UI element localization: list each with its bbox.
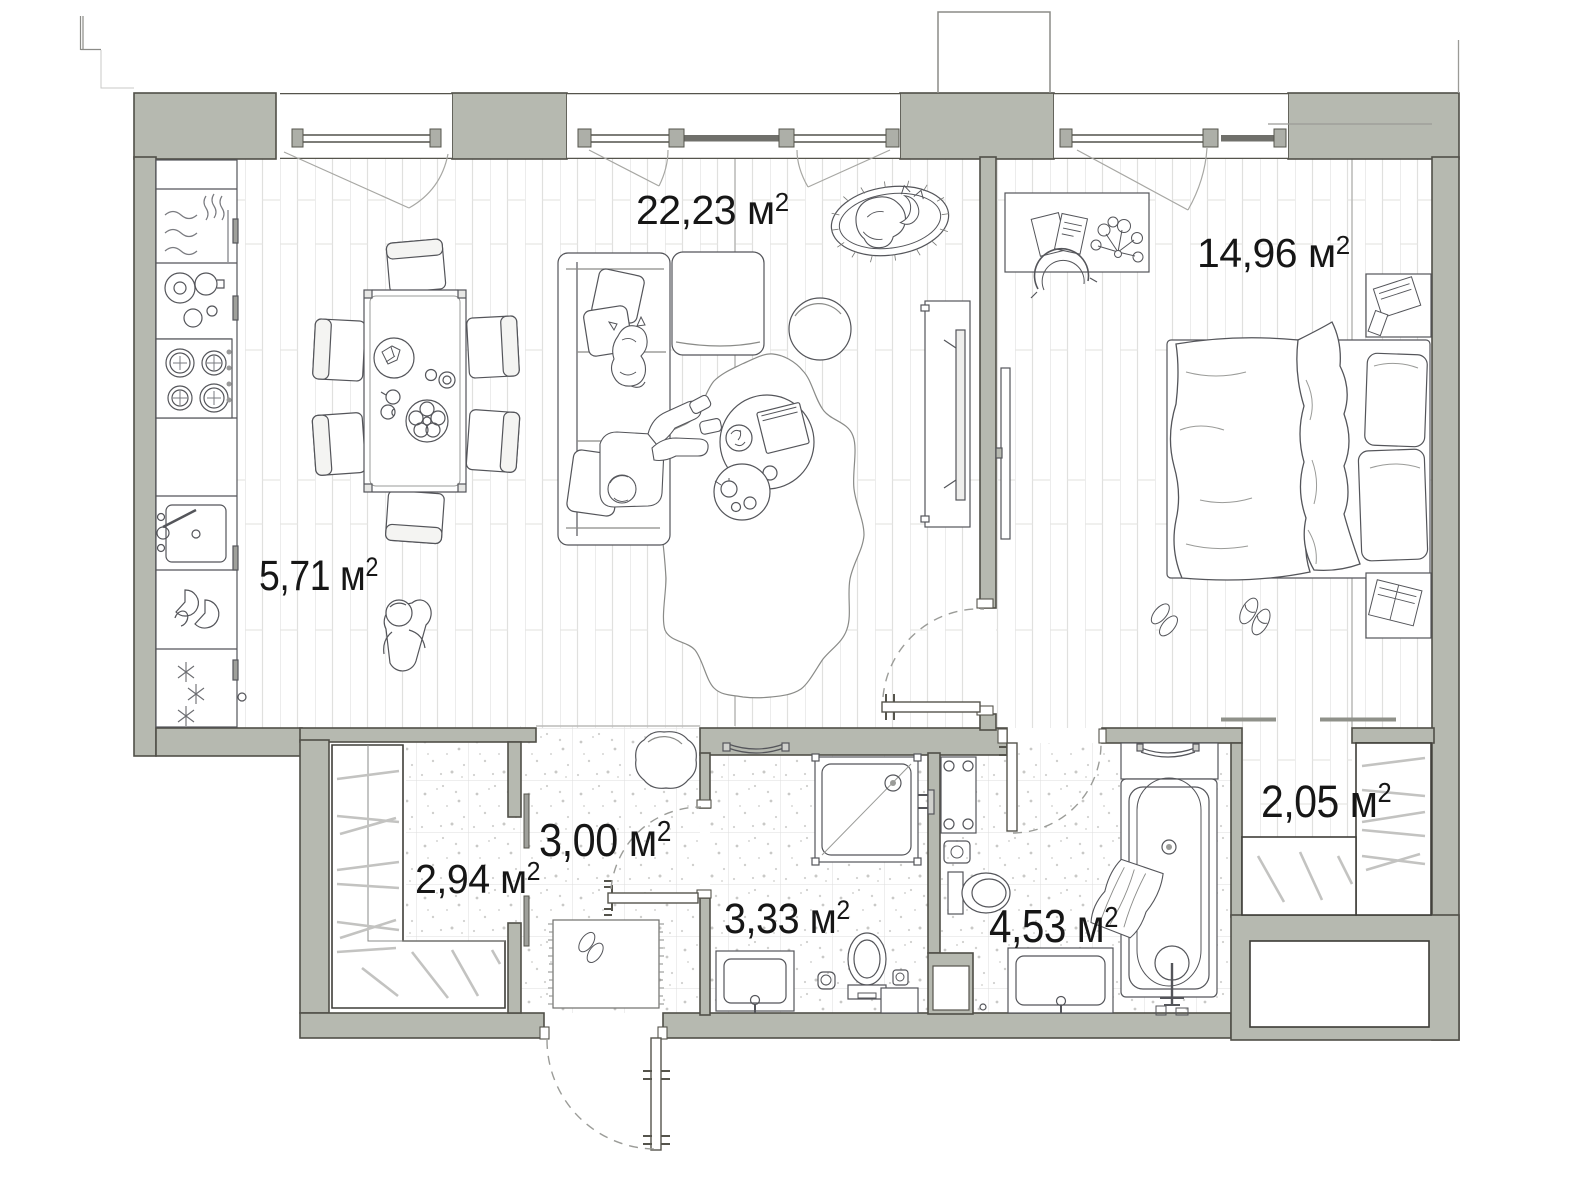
svg-text:3,33 м2: 3,33 м2 bbox=[724, 894, 850, 942]
svg-text:4,53 м2: 4,53 м2 bbox=[989, 900, 1118, 952]
svg-text:2,05 м2: 2,05 м2 bbox=[1261, 777, 1391, 828]
svg-text:2,94 м2: 2,94 м2 bbox=[415, 856, 540, 902]
svg-text:14,96 м2: 14,96 м2 bbox=[1197, 230, 1350, 276]
svg-text:22,23 м2: 22,23 м2 bbox=[636, 187, 789, 233]
svg-text:3,00 м2: 3,00 м2 bbox=[539, 815, 671, 867]
svg-text:5,71 м2: 5,71 м2 bbox=[259, 552, 378, 600]
